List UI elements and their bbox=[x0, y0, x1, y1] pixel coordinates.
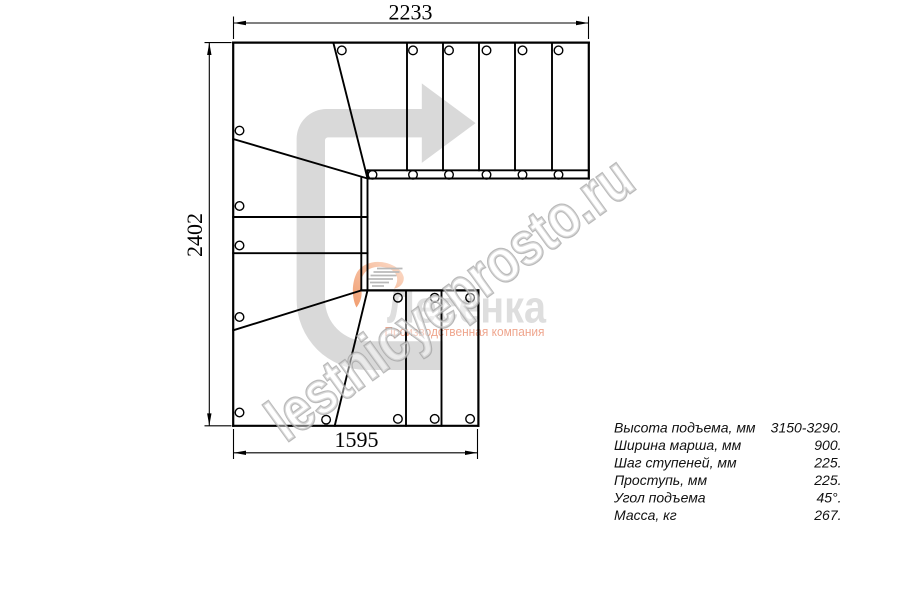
svg-text:Ширина марша, мм: Ширина марша, мм bbox=[614, 437, 742, 453]
svg-text:3150-3290.: 3150-3290. bbox=[771, 420, 842, 436]
svg-text:Шаг ступеней, мм: Шаг ступеней, мм bbox=[614, 455, 737, 471]
svg-text:1595: 1595 bbox=[335, 427, 379, 452]
svg-text:267.: 267. bbox=[813, 507, 841, 523]
svg-text:225.: 225. bbox=[813, 455, 841, 471]
svg-text:2233: 2233 bbox=[389, 0, 433, 25]
svg-text:Масса, кг: Масса, кг bbox=[614, 507, 677, 523]
svg-text:Угол подъема: Угол подъема bbox=[613, 490, 706, 506]
svg-text:Высота подъема, мм: Высота подъема, мм bbox=[614, 420, 756, 436]
svg-text:2402: 2402 bbox=[182, 213, 207, 257]
svg-text:45°.: 45°. bbox=[816, 490, 841, 506]
svg-text:225.: 225. bbox=[813, 472, 841, 488]
svg-text:900.: 900. bbox=[814, 437, 841, 453]
svg-text:Проступь, мм: Проступь, мм bbox=[614, 472, 708, 488]
